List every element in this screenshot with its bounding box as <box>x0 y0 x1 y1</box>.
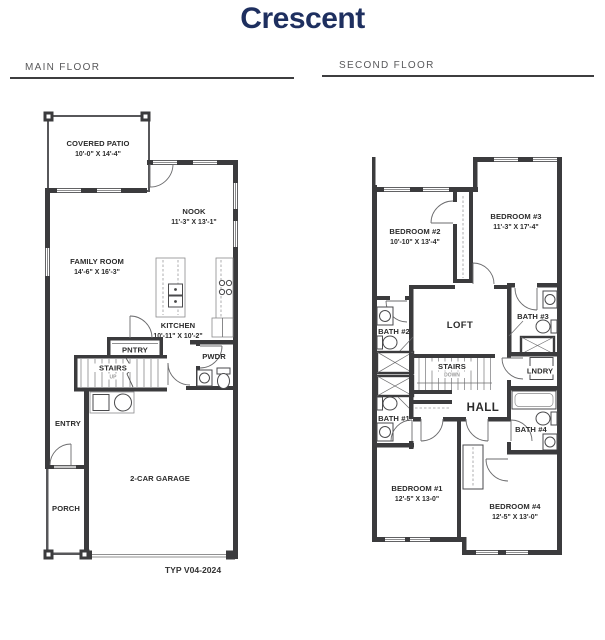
bath-2-label: BATH #2 <box>378 327 410 336</box>
stairs-main-direction: UP <box>110 375 118 381</box>
bath-4-label: BATH #4 <box>515 425 547 434</box>
porch-label: PORCH <box>52 504 80 513</box>
garage-label: 2-CAR GARAGE <box>130 474 190 483</box>
floor-plan-sheet: Crescent MAIN FLOOR SECOND FLOOR COVERED… <box>0 0 605 640</box>
bath-1-label: BATH #1 <box>378 414 410 423</box>
porch: PORCH <box>44 469 90 560</box>
laundry-label: LNDRY <box>527 367 553 376</box>
laundry: LNDRY <box>502 352 562 388</box>
entry-label: ENTRY <box>55 419 81 428</box>
bedroom-2-dims: 10'-10" X 13'-4" <box>390 239 440 246</box>
bedroom-4-label: BEDROOM #4 <box>489 502 541 511</box>
bedroom-2: BEDROOM #2 10'-10" X 13'-4" <box>389 227 440 246</box>
hall: HALL <box>413 402 511 441</box>
pantry: PNTRY <box>107 316 163 359</box>
bedroom-3-dims: 11'-3" X 17'-4" <box>493 224 538 231</box>
covered-patio-dims: 10'-0" X 14'-4" <box>75 151 121 158</box>
bedroom-1: BEDROOM #1 12'-5" X 13-0" <box>391 484 443 503</box>
family-room-label: FAMILY ROOM <box>70 257 124 266</box>
plan-title: Crescent <box>0 2 605 36</box>
second-floor-plan: BEDROOM #2 10'-10" X 13'-4" BEDROOM #3 1… <box>305 90 605 590</box>
kitchen-label: KITCHEN <box>161 321 195 330</box>
bedroom-1-label: BEDROOM #1 <box>391 484 443 493</box>
bedroom-3-label: BEDROOM #3 <box>490 212 541 221</box>
main-floor-divider <box>10 77 294 79</box>
loft: LOFT <box>409 263 511 353</box>
pantry-label: PNTRY <box>122 346 148 355</box>
second-floor-divider <box>322 75 594 77</box>
main-floor-plan: COVERED PATIO 10'-0" X 14'-4" NOOK 11'-3… <box>0 90 305 590</box>
family-room-dims: 14'-6" X 16'-3" <box>74 269 120 276</box>
stairs-main-label: STAIRS <box>99 364 127 373</box>
entry: ENTRY <box>45 419 87 469</box>
loft-label: LOFT <box>447 320 473 331</box>
bedroom-4: BEDROOM #4 12'-5" X 13'-0" <box>457 421 541 537</box>
bedroom-closet-shaft <box>431 192 473 283</box>
powder-label: PWDR <box>202 352 226 361</box>
bedroom-2-label: BEDROOM #2 <box>389 227 440 236</box>
bath-3: BATH #3 <box>507 283 562 356</box>
plan-code: TYP V04-2024 <box>165 565 221 575</box>
nook-label: NOOK <box>182 207 206 216</box>
nook-dims: 11'-3" X 13'-1" <box>171 219 216 226</box>
kitchen: KITCHEN 10'-11" X 10'-2" <box>153 258 233 340</box>
covered-patio-label: COVERED PATIO <box>66 139 129 148</box>
bath-4: BATH #4 <box>507 386 562 455</box>
bath-2: BATH #2 <box>377 296 413 353</box>
main-floor-heading: MAIN FLOOR <box>25 62 100 73</box>
garage: 2-CAR GARAGE <box>83 386 235 560</box>
stairs-second-label: STAIRS <box>438 362 466 371</box>
stairs-main: STAIRS UP <box>74 355 190 392</box>
hall-label: HALL <box>467 402 500 414</box>
second-floor-heading: SECOND FLOOR <box>339 60 435 71</box>
linen-closets <box>377 352 413 396</box>
stairs-second: STAIRS DOWN <box>413 354 495 408</box>
covered-patio: COVERED PATIO 10'-0" X 14'-4" <box>44 112 151 192</box>
powder-room: PWDR <box>190 340 238 390</box>
bedroom-4-dims: 12'-5" X 13'-0" <box>492 514 538 521</box>
bedroom-1-dims: 12'-5" X 13-0" <box>395 496 439 503</box>
bedroom-3: BEDROOM #3 11'-3" X 17'-4" <box>490 212 541 231</box>
stairs-second-direction: DOWN <box>444 373 460 379</box>
